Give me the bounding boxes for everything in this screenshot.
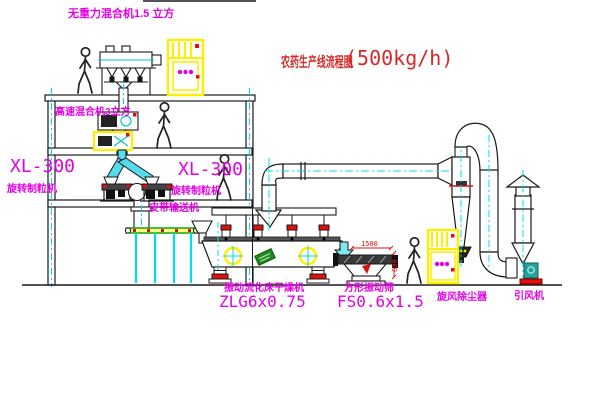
label-dryer-model: ZLG6x0.75 xyxy=(219,294,306,310)
label-fan: 引风机 xyxy=(514,292,544,302)
exhaust-duct-drawing xyxy=(256,157,452,230)
dim-screen-length: 1500 xyxy=(361,240,378,248)
title-chinese: 农药生产线流程图 xyxy=(281,52,353,72)
label-cyclone: 旋风除尘器 xyxy=(437,293,487,303)
person-ground xyxy=(407,238,421,283)
label-gravity-mixer: 无重力混合机1.5 立方 xyxy=(68,9,174,20)
label-granulator-left-model: XL-300 xyxy=(10,158,75,176)
control-cabinet-ground xyxy=(428,230,458,283)
label-granulator-left-name: 旋转制粒机 xyxy=(7,185,57,195)
person-roof xyxy=(78,48,92,93)
control-cabinet-roof xyxy=(168,40,203,95)
label-screen-model: FS0.6x1.5 xyxy=(337,294,424,310)
label-belt-conveyor: 皮带输送机 xyxy=(149,204,199,214)
person-floor3 xyxy=(157,103,171,148)
belt-conveyor-drawing xyxy=(125,228,198,283)
label-high-speed-mixer: 高速混合机3立方 xyxy=(55,108,131,118)
vibrating-screen-drawing xyxy=(333,242,398,285)
label-granulator-right-model: XL-300 xyxy=(178,161,243,179)
page-title: 农药生产线流程图 (500kg/h) xyxy=(281,46,501,74)
title-capacity: (500kg/h) xyxy=(345,46,453,70)
label-granulator-right-name: 旋转制粒机 xyxy=(171,187,221,197)
diagram-canvas: 农药生产线流程图 (500kg/h) 无重力混合机1.5 立方 高速混合机3立方… xyxy=(0,0,600,403)
dim-screen-height: 600 xyxy=(391,259,399,272)
